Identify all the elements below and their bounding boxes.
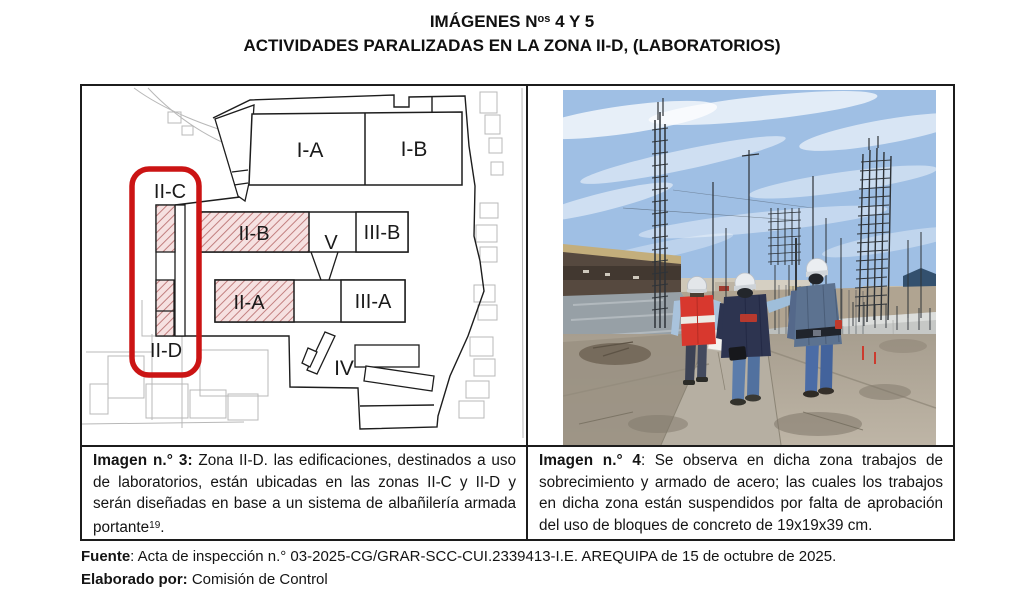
- figure-title: IMÁGENES Nos 4 Y 5 ACTIVIDADES PARALIZAD…: [0, 7, 1024, 58]
- plan-block-2c-2d: II-C II-D: [150, 181, 186, 362]
- helmet: [688, 277, 707, 296]
- figure-table: I-A I-B II-B III-B V: [80, 84, 955, 541]
- prepared-by-label: Elaborado por:: [81, 571, 188, 588]
- figure-title-line1: IMÁGENES Nos 4 Y 5: [0, 7, 1024, 34]
- label-zone-iiia: III-A: [355, 291, 392, 313]
- plan-block-4: [302, 332, 434, 391]
- label-zone-iic: II-C: [154, 181, 186, 203]
- prepared-by-line: Elaborado por: Comisión de Control: [81, 568, 836, 591]
- label-zone-iiib: III-B: [364, 222, 401, 244]
- report-page: IMÁGENES Nos 4 Y 5 ACTIVIDADES PARALIZAD…: [0, 0, 1024, 604]
- site-plan-cell: I-A I-B II-B III-B V: [82, 86, 528, 445]
- source-text: : Acta de inspección n.° 03-2025-CG/GRAR…: [130, 548, 836, 565]
- figure-title-line2: ACTIVIDADES PARALIZADAS EN LA ZONA II-D,…: [0, 34, 1024, 58]
- label-zone-iib: II-B: [238, 223, 269, 245]
- caption-image-4-label: Imagen n.° 4: [539, 452, 641, 469]
- source-label: Fuente: [81, 548, 130, 565]
- label-zone-v: V: [324, 232, 338, 254]
- plan-block-2a: II-A III-A: [215, 280, 405, 322]
- photo-cell: [528, 86, 953, 445]
- title-superscript: os: [538, 13, 551, 25]
- source-line: Fuente: Acta de inspección n.° 03-2025-C…: [81, 545, 836, 568]
- caption-image-3-label: Imagen n.° 3:: [93, 452, 193, 469]
- debris-pile: [579, 343, 651, 365]
- vest-back-patch: [740, 314, 757, 322]
- plan-block-1: I-A I-B: [249, 112, 462, 185]
- label-zone-iv: IV: [334, 357, 354, 380]
- label-zone-ib: I-B: [401, 138, 428, 161]
- footnote-ref-19: 19: [149, 520, 160, 531]
- figure-footer: Fuente: Acta de inspección n.° 03-2025-C…: [81, 545, 836, 591]
- prepared-by-text: Comisión de Control: [188, 571, 328, 588]
- plan-strip-building: [215, 105, 254, 201]
- site-plan-drawing: I-A I-B II-B III-B V: [82, 86, 526, 443]
- label-zone-ia: I-A: [297, 139, 324, 162]
- label-zone-iid: II-D: [150, 340, 182, 362]
- caption-image-4: Imagen n.° 4: Se observa en dicha zona t…: [528, 445, 953, 539]
- construction-site-photo: [563, 90, 936, 445]
- caption-image-3: Imagen n.° 3: Zona II-D. las edificacion…: [82, 445, 528, 539]
- plan-block-2b: II-B III-B V: [200, 212, 408, 280]
- label-zone-iia: II-A: [233, 292, 265, 314]
